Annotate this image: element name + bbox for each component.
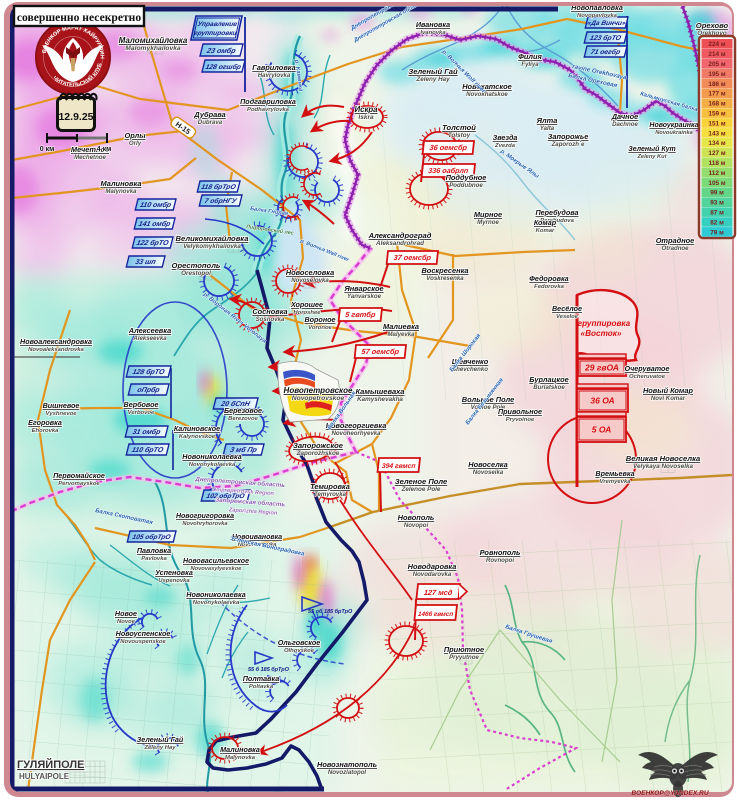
svg-text:Толстой: Толстой bbox=[442, 123, 476, 132]
svg-text:123 брТО: 123 брТО bbox=[589, 34, 622, 42]
svg-text:Malomykhailovka: Malomykhailovka bbox=[125, 45, 181, 52]
svg-text:151 м: 151 м bbox=[708, 120, 725, 127]
svg-text:Полтавка: Полтавка bbox=[243, 674, 280, 683]
svg-text:Управление: Управление bbox=[197, 21, 238, 28]
svg-text:Novoaleksandrovka: Novoaleksandrovka bbox=[28, 347, 84, 353]
svg-text:Novopetrovskoe: Novopetrovskoe bbox=[292, 395, 345, 402]
svg-text:Voronoe: Voronoe bbox=[308, 325, 332, 331]
svg-text:Новоалександровка: Новоалександровка bbox=[20, 337, 92, 346]
svg-text:Березовое: Березовое bbox=[224, 406, 262, 415]
svg-text:134 м: 134 м bbox=[708, 140, 725, 147]
svg-text:186 м: 186 м bbox=[708, 81, 725, 88]
svg-text:Orly: Orly bbox=[129, 140, 142, 147]
svg-text:Дачное: Дачное bbox=[611, 112, 639, 121]
svg-text:128 огшбр: 128 огшбр bbox=[205, 63, 242, 71]
svg-text:Olhovskoe: Olhovskoe bbox=[284, 648, 315, 654]
svg-text:Звезда: Звезда bbox=[493, 133, 518, 142]
svg-text:Malynovka: Malynovka bbox=[105, 188, 137, 195]
svg-text:Novodarovka: Novodarovka bbox=[413, 571, 452, 578]
svg-text:Новодаровка: Новодаровка bbox=[408, 562, 457, 571]
svg-text:Novopavlovka: Novopavlovka bbox=[577, 13, 618, 19]
svg-text:31 омбр: 31 омбр bbox=[132, 428, 162, 436]
svg-text:55 б 185 брТрО: 55 б 185 брТрО bbox=[248, 666, 290, 673]
svg-text:Новополь: Новополь bbox=[398, 513, 435, 522]
svg-text:105 обрТрО: 105 обрТрО bbox=[132, 533, 173, 541]
svg-text:177 м: 177 м bbox=[708, 91, 725, 98]
svg-text:Маломихайловка: Маломихайловка bbox=[119, 36, 188, 45]
svg-text:Ivanovka: Ivanovka bbox=[420, 30, 446, 36]
svg-text:Егоровка: Егоровка bbox=[28, 418, 62, 427]
svg-text:«Восток»: «Восток» bbox=[581, 329, 622, 338]
svg-text:394 гвмсп: 394 гвмсп bbox=[381, 463, 416, 470]
svg-text:Novoselovka: Novoselovka bbox=[291, 277, 329, 284]
svg-text:Malyevka: Malyevka bbox=[387, 331, 415, 338]
svg-text:79 м: 79 м bbox=[710, 229, 724, 236]
svg-text:118 м: 118 м bbox=[709, 160, 726, 167]
svg-text:112 м: 112 м bbox=[709, 170, 726, 177]
svg-text:оПрбр: оПрбр bbox=[136, 386, 161, 394]
svg-text:Новоселка: Новоселка bbox=[468, 460, 508, 469]
svg-text:Mechetnoe: Mechetnoe bbox=[74, 154, 106, 161]
svg-text:110 брТО: 110 брТО bbox=[131, 446, 165, 454]
svg-text:Berezovoe: Berezovoe bbox=[228, 416, 259, 422]
svg-text:Вербовое: Вербовое bbox=[124, 400, 159, 409]
svg-text:Pryyutnoe: Pryyutnoe bbox=[449, 654, 479, 661]
svg-text:Орлы: Орлы bbox=[124, 131, 146, 140]
svg-text:Очеруватое: Очеруватое bbox=[625, 364, 670, 373]
svg-text:Novopoi: Novopoi bbox=[404, 522, 429, 529]
svg-text:Филия: Филия bbox=[518, 52, 542, 61]
svg-text:36 ОА: 36 ОА bbox=[590, 396, 614, 406]
svg-text:Запорожское: Запорожское bbox=[293, 441, 344, 450]
svg-text:Novonykolaevka: Novonykolaevka bbox=[189, 462, 236, 468]
svg-text:Камышеваха: Камышеваха bbox=[355, 387, 404, 396]
svg-text:71 оегбр: 71 оегбр bbox=[590, 48, 621, 56]
svg-text:214 м: 214 м bbox=[708, 51, 725, 58]
svg-text:Dachnoe: Dachnoe bbox=[612, 121, 638, 128]
svg-text:Pervomayskoe: Pervomayskoe bbox=[58, 481, 100, 487]
svg-text:Ольговское: Ольговское bbox=[278, 638, 321, 647]
svg-text:Dubrava: Dubrava bbox=[198, 119, 223, 126]
svg-text:Воскресенка: Воскресенка bbox=[421, 266, 468, 275]
svg-text:Новоуспенское: Новоуспенское bbox=[116, 629, 171, 638]
svg-text:группировка: группировка bbox=[578, 319, 631, 328]
svg-text:Vremyevka: Vremyevka bbox=[599, 479, 631, 485]
svg-text:Новогригоровка: Новогригоровка bbox=[176, 513, 234, 520]
svg-text:Poltavka: Poltavka bbox=[249, 684, 274, 690]
svg-text:Успеновка: Успеновка bbox=[155, 568, 193, 577]
svg-text:143 м: 143 м bbox=[708, 130, 725, 137]
svg-text:Sosnovka: Sosnovka bbox=[256, 316, 285, 323]
svg-text:Весёлое: Весёлое bbox=[552, 304, 582, 313]
svg-text:Novoe: Novoe bbox=[117, 619, 136, 625]
svg-text:Новый Комар: Новый Комар bbox=[643, 386, 694, 395]
svg-text:Yalta: Yalta bbox=[540, 125, 555, 132]
svg-text:1466 гвмсп: 1466 гвмсп bbox=[417, 611, 453, 618]
svg-text:Podhavrylovka: Podhavrylovka bbox=[247, 107, 290, 113]
svg-text:Вороное: Вороное bbox=[304, 315, 335, 324]
svg-text:Зеленый Гай: Зеленый Гай bbox=[408, 67, 458, 76]
svg-text:Zeleny Kut: Zeleny Kut bbox=[636, 154, 667, 160]
svg-text:Fedorovka: Fedorovka bbox=[534, 284, 565, 290]
svg-text:93 м: 93 м bbox=[710, 200, 724, 207]
svg-text:Yanvarskoe: Yanvarskoe bbox=[347, 293, 382, 300]
svg-text:224 м: 224 м bbox=[708, 41, 725, 48]
svg-text:Сосновка: Сосновка bbox=[252, 307, 287, 316]
svg-text:Орехово: Орехово bbox=[696, 21, 729, 30]
svg-text:Novovasylyevskoe: Novovasylyevskoe bbox=[191, 566, 242, 572]
svg-text:Поддубное: Поддубное bbox=[446, 173, 487, 182]
svg-text:Новохатское: Новохатское bbox=[462, 82, 512, 91]
svg-text:29 гвОА: 29 гвОА bbox=[584, 363, 619, 373]
svg-text:57 оемсбр: 57 оемсбр bbox=[361, 347, 400, 356]
svg-text:Ocheruvatoe: Ocheruvatoe bbox=[629, 374, 666, 380]
svg-text:Novoukrainka: Novoukrainka bbox=[655, 130, 693, 136]
svg-text:Александроград: Александроград bbox=[368, 231, 432, 240]
svg-text:Гавриловка: Гавриловка bbox=[252, 63, 295, 72]
svg-text:205 м: 205 м bbox=[708, 61, 725, 68]
svg-text:105 м: 105 м bbox=[708, 180, 725, 187]
svg-text:Rovnopoi: Rovnopoi bbox=[486, 557, 514, 564]
svg-text:7 обрНГУ: 7 обрНГУ bbox=[204, 197, 239, 205]
svg-text:Первомайское: Первомайское bbox=[53, 471, 105, 480]
svg-text:Zaporozh`e: Zaporozh`e bbox=[551, 141, 585, 148]
svg-text:33 шп: 33 шп bbox=[134, 258, 157, 266]
svg-text:Времьевка: Времьевка bbox=[595, 469, 634, 478]
svg-text:Ивановка: Ивановка bbox=[416, 20, 450, 29]
svg-text:Novokhatskoe: Novokhatskoe bbox=[466, 91, 508, 98]
svg-text:Новознатополь: Новознатополь bbox=[317, 760, 377, 769]
svg-text:Ehorovka: Ehorovka bbox=[32, 428, 60, 434]
svg-text:36 оемсбр: 36 оемсбр bbox=[429, 143, 468, 152]
svg-text:Дубрава: Дубрава bbox=[193, 110, 225, 119]
svg-text:Новониколаевка: Новониколаевка bbox=[182, 452, 241, 461]
svg-text:Myrnoe: Myrnoe bbox=[477, 219, 499, 226]
svg-text:4 км: 4 км bbox=[97, 146, 112, 153]
svg-text:Ровнополь: Ровнополь bbox=[480, 548, 521, 557]
svg-text:ГУЛЯЙПОЛЕ: ГУЛЯЙПОЛЕ bbox=[17, 758, 84, 771]
svg-text:Темировка: Темировка bbox=[310, 482, 350, 491]
svg-text:Вишневое: Вишневое bbox=[43, 401, 80, 410]
svg-text:Новопетровское: Новопетровское bbox=[284, 386, 353, 395]
svg-text:Kalynovskoe: Kalynovskoe bbox=[179, 434, 216, 440]
svg-text:127 м: 127 м bbox=[708, 150, 725, 157]
svg-text:Зеленый Кут: Зеленый Кут bbox=[628, 145, 675, 153]
svg-text:Aleksandrohrad: Aleksandrohrad bbox=[375, 240, 424, 247]
svg-text:12.9.25: 12.9.25 bbox=[58, 111, 93, 123]
svg-text:Novoheorhyevka: Novoheorhyevka bbox=[331, 430, 381, 437]
svg-text:Orestopol: Orestopol bbox=[181, 270, 211, 277]
svg-text:группировки: группировки bbox=[193, 30, 237, 37]
svg-text:Iskra: Iskra bbox=[358, 114, 374, 121]
svg-text:Fyliya: Fyliya bbox=[521, 61, 539, 68]
svg-text:Ялта: Ялта bbox=[536, 116, 558, 125]
svg-text:Verbovoe: Verbovoe bbox=[128, 410, 155, 416]
svg-text:128 брТО: 128 брТО bbox=[132, 368, 166, 376]
svg-text:Pryvoinoe: Pryvoinoe bbox=[506, 417, 535, 423]
svg-text:Temyrovka: Temyrovka bbox=[314, 491, 347, 498]
svg-text:Zelenoe Pole: Zelenoe Pole bbox=[401, 486, 441, 493]
svg-text:Otradnoe: Otradnoe bbox=[661, 245, 689, 252]
svg-text:Tolstoy: Tolstoy bbox=[448, 132, 471, 139]
svg-text:Мирное: Мирное bbox=[474, 210, 502, 219]
svg-text:Зеленое Поле: Зеленое Поле bbox=[395, 477, 448, 486]
svg-text:Velykomykhailovka: Velykomykhailovka bbox=[183, 243, 241, 250]
svg-text:Velykaya Novoselka: Velykaya Novoselka bbox=[633, 463, 693, 470]
svg-text:Малиновка: Малиновка bbox=[101, 179, 142, 188]
svg-text:Алексеевка: Алексеевка bbox=[128, 326, 171, 335]
svg-text:110 омбр: 110 омбр bbox=[139, 201, 173, 209]
svg-text:141 омбр: 141 омбр bbox=[138, 220, 172, 228]
svg-text:Запорожье: Запорожье bbox=[548, 132, 589, 141]
svg-text:159 м: 159 м bbox=[708, 111, 725, 118]
svg-text:168 м: 168 м bbox=[708, 101, 725, 108]
svg-text:127 мсд: 127 мсд bbox=[423, 588, 453, 597]
svg-text:Привольное: Привольное bbox=[498, 407, 542, 416]
svg-text:Малиевка: Малиевка bbox=[383, 322, 419, 331]
svg-text:Novohryhorovka: Novohryhorovka bbox=[182, 521, 227, 527]
svg-text:Poddubnoe: Poddubnoe bbox=[449, 182, 483, 189]
svg-text:Орестополь: Орестополь bbox=[172, 261, 221, 270]
svg-text:55 об 185 брТрО: 55 об 185 брТрО bbox=[308, 608, 353, 615]
svg-text:0 км: 0 км bbox=[40, 146, 55, 153]
svg-text:Новое: Новое bbox=[115, 609, 137, 618]
svg-text:82 м: 82 м bbox=[710, 219, 724, 226]
svg-text:Зеленый Гай: Зеленый Гай bbox=[137, 735, 184, 744]
svg-text:118 брТрО: 118 брТрО bbox=[200, 183, 237, 191]
svg-text:195 м: 195 м bbox=[708, 71, 725, 78]
svg-text:Калиновское: Калиновское bbox=[174, 424, 220, 433]
svg-text:Малиновка: Малиновка bbox=[220, 745, 260, 754]
svg-text:Zeleny Hay: Zeleny Hay bbox=[143, 745, 176, 751]
svg-text:Новоукраинка: Новоукраинка bbox=[649, 122, 698, 129]
svg-text:Бурлацкое: Бурлацкое bbox=[529, 375, 569, 384]
svg-text:5 ОА: 5 ОА bbox=[592, 425, 612, 435]
svg-text:122 брТО: 122 брТО bbox=[136, 239, 170, 247]
svg-text:Veseloe: Veseloe bbox=[556, 314, 579, 320]
svg-text:Pavlovka: Pavlovka bbox=[141, 556, 167, 562]
svg-text:Новониколаевка: Новониколаевка bbox=[186, 590, 245, 599]
svg-text:«Да Винчи»: «Да Винчи» bbox=[586, 20, 626, 27]
svg-text:Zaporozhskoe: Zaporozhskoe bbox=[296, 450, 340, 457]
svg-text:99 м: 99 м bbox=[710, 190, 724, 197]
svg-text:Нововасильевское: Нововасильевское bbox=[183, 558, 249, 565]
svg-text:Хорошее: Хорошее bbox=[290, 300, 323, 309]
svg-text:Подгавриловка: Подгавриловка bbox=[240, 97, 296, 106]
svg-text:Voskresenka: Voskresenka bbox=[426, 275, 464, 282]
svg-text:Novouspenskoe: Novouspenskoe bbox=[120, 639, 166, 645]
svg-text:Комар: Комар bbox=[534, 218, 557, 227]
svg-text:Novi Komar: Novi Komar bbox=[651, 395, 686, 402]
svg-text:37 оемсбр: 37 оемсбр bbox=[393, 253, 432, 262]
svg-text:Burlatskoe: Burlatskoe bbox=[533, 384, 565, 391]
svg-text:Отрадное: Отрадное bbox=[656, 236, 695, 245]
svg-text:совершенно несекретно: совершенно несекретно bbox=[17, 11, 142, 24]
svg-text:HULYAIPOLE: HULYAIPOLE bbox=[19, 772, 70, 781]
svg-text:Великая Новоселка: Великая Новоселка bbox=[626, 454, 701, 463]
svg-text:Zeleny Hay: Zeleny Hay bbox=[415, 76, 450, 83]
svg-text:Январское: Январское bbox=[343, 284, 383, 293]
svg-text:Федоровка: Федоровка bbox=[529, 274, 568, 283]
svg-text:Havrylovka: Havrylovka bbox=[258, 72, 291, 79]
svg-text:Novozlatopol: Novozlatopol bbox=[328, 769, 367, 776]
svg-text:Великомихайловка: Великомихайловка bbox=[176, 234, 249, 243]
svg-text:87 м: 87 м bbox=[710, 210, 724, 217]
svg-text:Перебудова: Перебудова bbox=[536, 208, 579, 217]
svg-text:Novonykolaevka: Novonykolaevka bbox=[193, 600, 240, 606]
svg-text:23 омбр: 23 омбр bbox=[205, 46, 237, 55]
svg-text:Новоселовка: Новоселовка bbox=[286, 268, 334, 277]
svg-text:Malynovka: Malynovka bbox=[225, 755, 256, 761]
svg-text:Komar: Komar bbox=[536, 228, 555, 234]
svg-text:Kamyshevakha: Kamyshevakha bbox=[357, 396, 403, 403]
svg-text:Zvezda: Zvezda bbox=[494, 143, 516, 149]
svg-text:Novoseika: Novoseika bbox=[473, 469, 504, 476]
svg-text:Alekseevka: Alekseevka bbox=[132, 335, 167, 342]
svg-text:5 гвтбр: 5 гвтбр bbox=[345, 310, 377, 319]
svg-text:Искра: Искра bbox=[355, 105, 379, 114]
svg-text:Uspenovka: Uspenovka bbox=[158, 578, 190, 584]
svg-text:Павловка: Павловка bbox=[137, 546, 171, 555]
svg-text:ВОЕНКОР@YANDEX.RU: ВОЕНКОР@YANDEX.RU bbox=[631, 790, 708, 797]
svg-text:Приютное: Приютное bbox=[444, 645, 484, 654]
svg-text:Vyshnevoe: Vyshnevoe bbox=[46, 411, 78, 417]
